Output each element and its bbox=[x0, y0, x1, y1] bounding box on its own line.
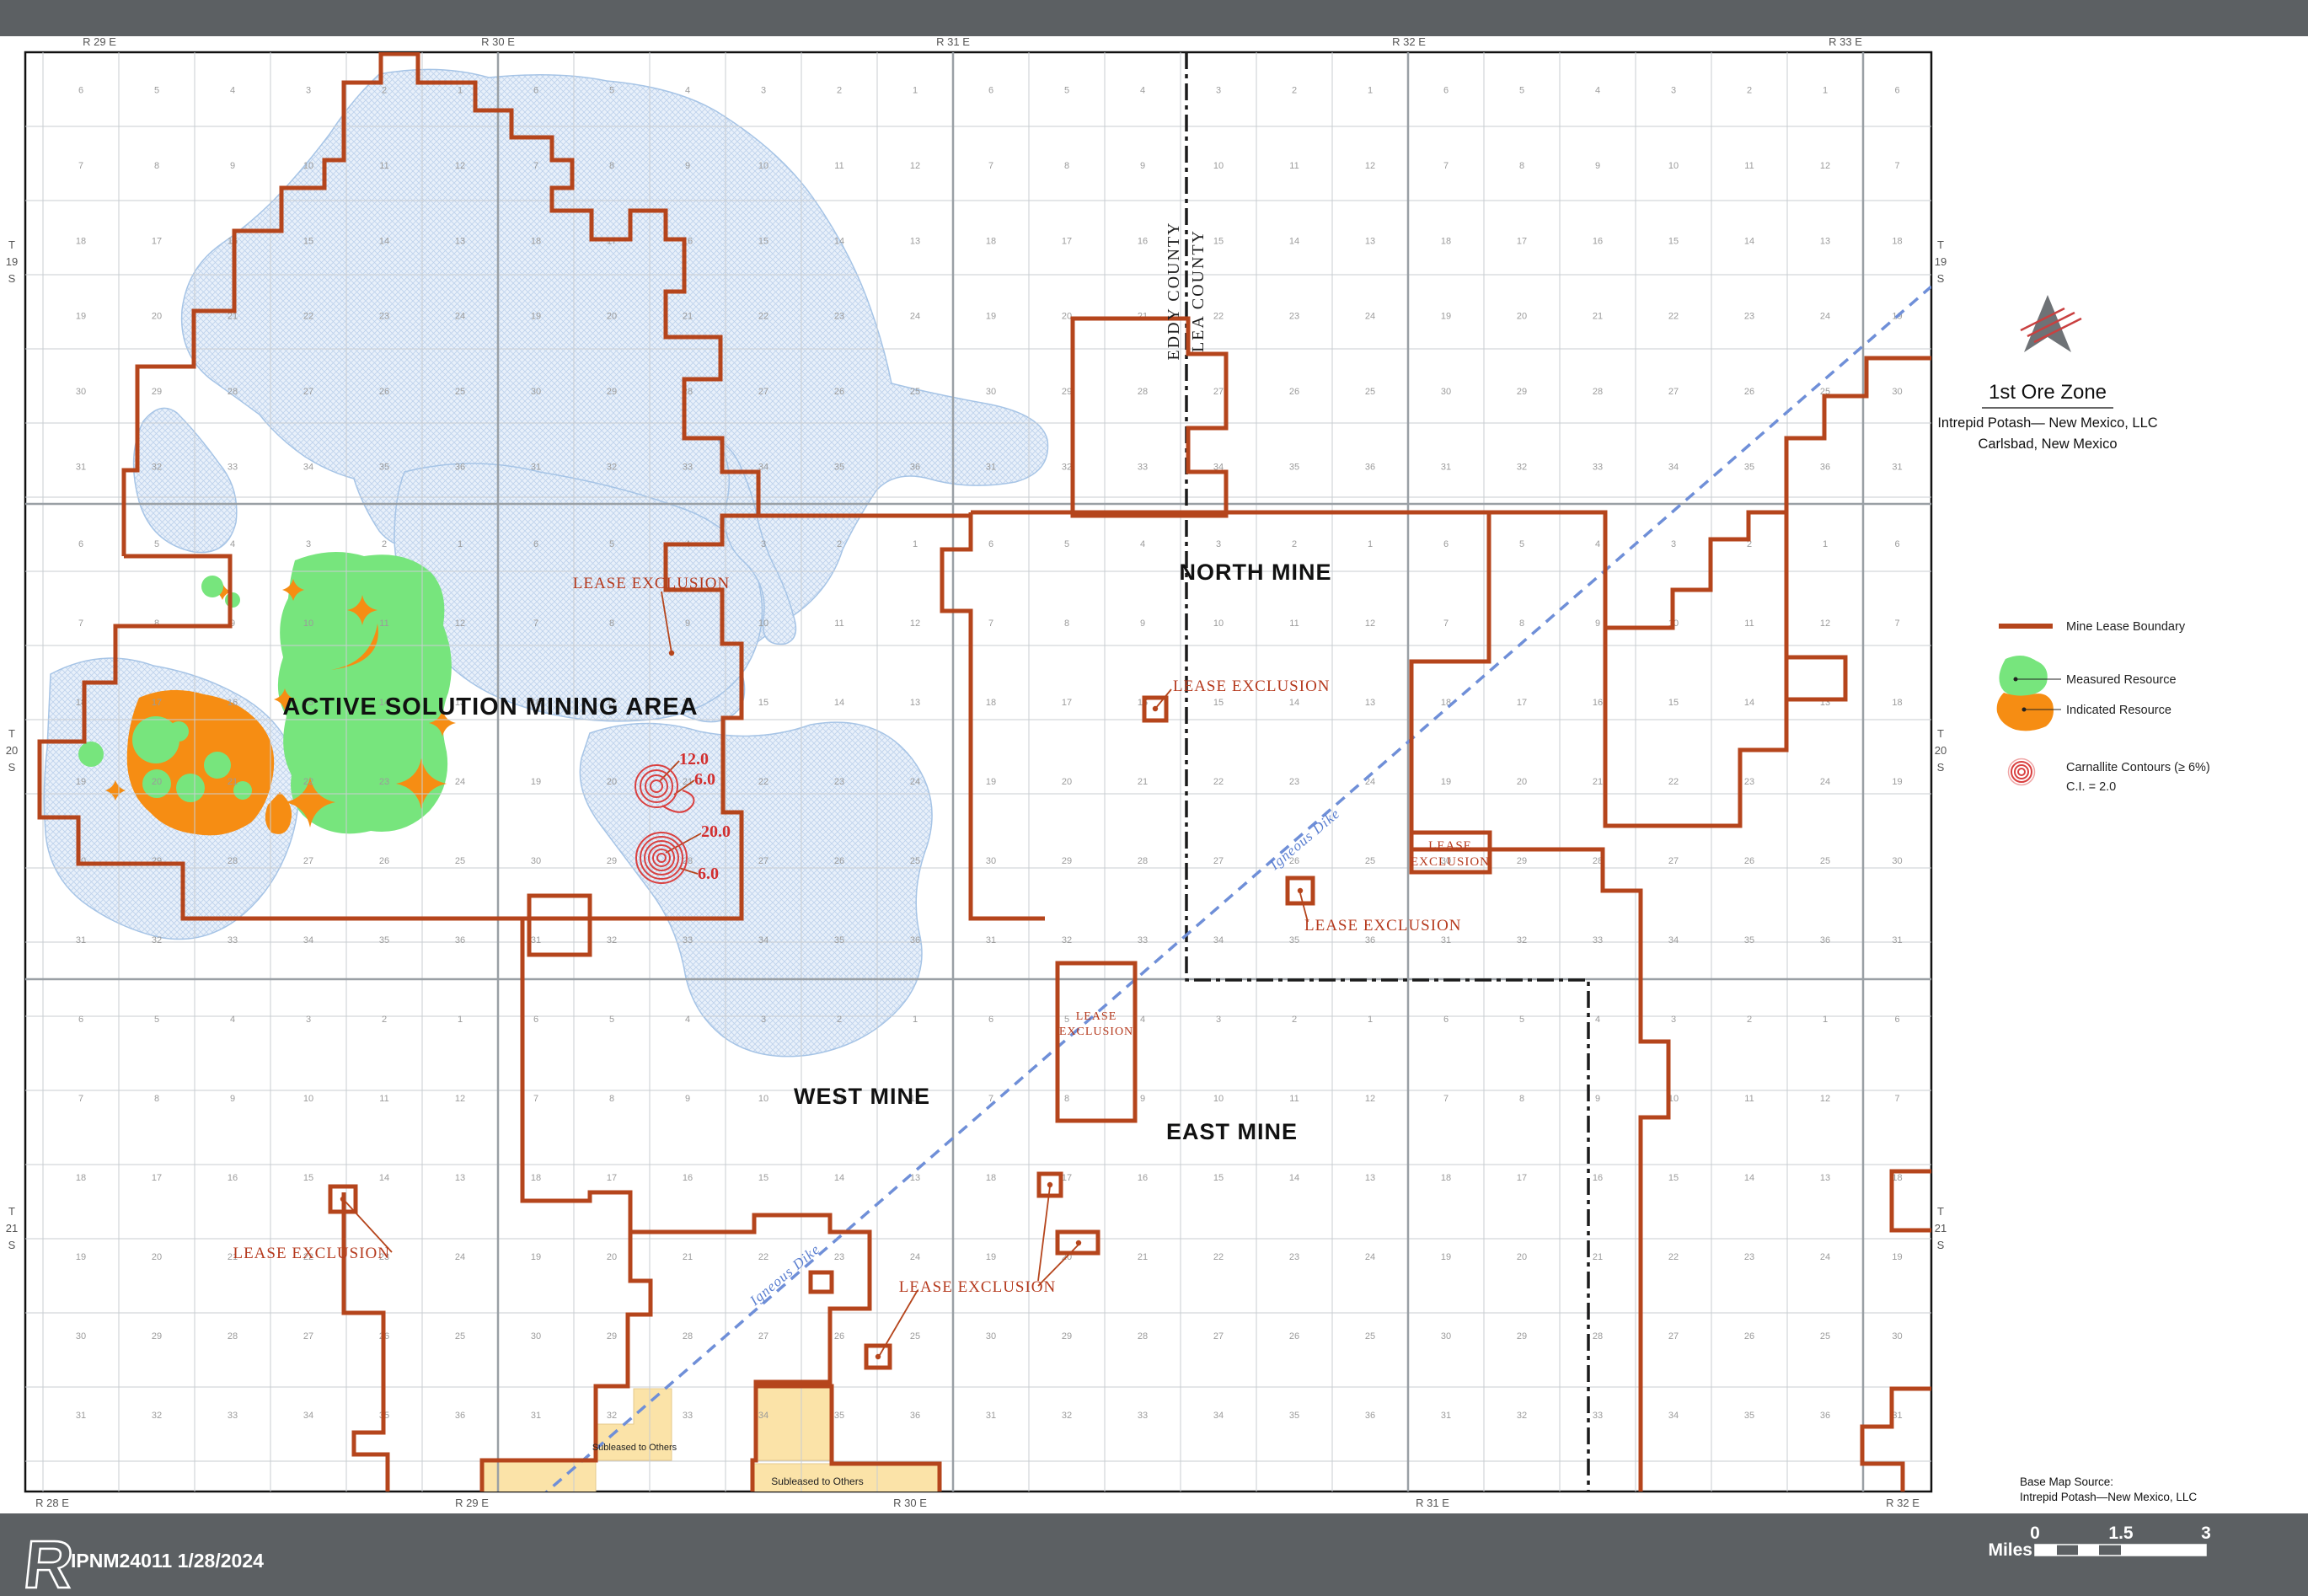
west-mine-label: WEST MINE bbox=[794, 1084, 930, 1109]
section-number: 1 bbox=[913, 86, 918, 96]
section-number: 16 bbox=[1593, 236, 1603, 246]
logo-letter: R bbox=[20, 1526, 77, 1596]
section-number: 32 bbox=[1062, 1411, 1072, 1421]
section-number: 33 bbox=[228, 935, 238, 945]
township-label: T bbox=[8, 1205, 15, 1218]
section-number: 12 bbox=[455, 1094, 465, 1104]
section-number: 20 bbox=[1517, 312, 1527, 322]
section-number: 24 bbox=[910, 777, 920, 787]
section-number: 4 bbox=[685, 86, 690, 96]
section-number: 27 bbox=[303, 856, 313, 866]
section-number: 18 bbox=[1892, 236, 1902, 246]
section-number: 25 bbox=[910, 856, 920, 866]
section-number: 33 bbox=[683, 462, 693, 472]
section-number: 23 bbox=[379, 312, 389, 322]
section-number: 5 bbox=[1519, 539, 1524, 549]
section-number: 19 bbox=[1892, 1252, 1902, 1262]
section-number: 19 bbox=[1441, 777, 1451, 787]
section-number: 18 bbox=[531, 236, 541, 246]
section-number: 24 bbox=[1820, 312, 1830, 322]
section-number: 20 bbox=[607, 312, 617, 322]
section-number: 32 bbox=[1062, 935, 1072, 945]
section-number: 34 bbox=[303, 1411, 313, 1421]
north-mine-label: NORTH MINE bbox=[1180, 560, 1332, 585]
section-number: 32 bbox=[607, 462, 617, 472]
township-label: S bbox=[1937, 1239, 1945, 1251]
section-number: 29 bbox=[1062, 1331, 1072, 1342]
section-number: 34 bbox=[1213, 935, 1224, 945]
section-number: 13 bbox=[455, 1173, 465, 1183]
section-number: 24 bbox=[1820, 777, 1830, 787]
section-number: 19 bbox=[76, 312, 86, 322]
section-number: 11 bbox=[1744, 619, 1754, 629]
section-number: 11 bbox=[379, 1094, 388, 1104]
section-number: 16 bbox=[683, 1173, 693, 1183]
section-number: 6 bbox=[1894, 86, 1899, 96]
section-number: 27 bbox=[303, 387, 313, 397]
section-number: 19 bbox=[76, 777, 86, 787]
section-number: 24 bbox=[1365, 1252, 1375, 1262]
section-number: 6 bbox=[533, 539, 538, 549]
range-label-top: R 32 E bbox=[1392, 35, 1426, 48]
map-document: 6543217891011121817161514131920212223243… bbox=[0, 0, 2308, 1596]
scale-tick-0: 0 bbox=[2030, 1524, 2040, 1543]
section-number: 13 bbox=[910, 1173, 920, 1183]
section-number: 21 bbox=[1138, 777, 1148, 787]
section-number: 5 bbox=[1519, 1015, 1524, 1025]
township-label: T bbox=[8, 727, 15, 740]
scale-bar-segment bbox=[2099, 1545, 2121, 1556]
section-number: 26 bbox=[1289, 387, 1299, 397]
section-number: 10 bbox=[303, 161, 313, 171]
section-number: 22 bbox=[303, 777, 313, 787]
range-label-bottom: R 28 E bbox=[35, 1497, 69, 1509]
section-number: 6 bbox=[1443, 86, 1449, 96]
township-label: T bbox=[1937, 727, 1944, 740]
section-number: 33 bbox=[1593, 462, 1603, 472]
section-number: 29 bbox=[607, 856, 617, 866]
section-number: 18 bbox=[531, 1173, 541, 1183]
section-number: 35 bbox=[1289, 462, 1299, 472]
section-number: 6 bbox=[78, 1015, 83, 1025]
section-number: 29 bbox=[607, 387, 617, 397]
section-number: 2 bbox=[382, 539, 387, 549]
section-number: 9 bbox=[1140, 1094, 1145, 1104]
section-number: 29 bbox=[1517, 1331, 1527, 1342]
measured-circle bbox=[201, 576, 223, 597]
section-number: 31 bbox=[1892, 935, 1902, 945]
section-number: 36 bbox=[1365, 1411, 1375, 1421]
section-number: 6 bbox=[78, 86, 83, 96]
section-number: 5 bbox=[1519, 86, 1524, 96]
section-number: 30 bbox=[76, 387, 86, 397]
section-number: 29 bbox=[1517, 856, 1527, 866]
section-number: 22 bbox=[1668, 1252, 1679, 1262]
section-number: 29 bbox=[1062, 856, 1072, 866]
section-number: 27 bbox=[758, 856, 768, 866]
section-number: 19 bbox=[1441, 1252, 1451, 1262]
section-number: 10 bbox=[303, 1094, 313, 1104]
section-number: 18 bbox=[1441, 1173, 1451, 1183]
section-number: 29 bbox=[152, 1331, 162, 1342]
section-number: 23 bbox=[1744, 777, 1754, 787]
section-number: 8 bbox=[609, 161, 614, 171]
section-number: 17 bbox=[1517, 236, 1527, 246]
section-number: 26 bbox=[834, 387, 844, 397]
section-number: 30 bbox=[986, 1331, 996, 1342]
section-number: 31 bbox=[76, 935, 86, 945]
section-number: 22 bbox=[303, 312, 313, 322]
section-number: 13 bbox=[910, 236, 920, 246]
section-number: 25 bbox=[1820, 1331, 1830, 1342]
lease-exclusion-label: LEASE EXCLUSION bbox=[1304, 917, 1462, 935]
document-number: IPNM24011 1/28/2024 bbox=[71, 1550, 264, 1572]
township-label: 20 bbox=[1935, 744, 1947, 757]
section-number: 35 bbox=[834, 1411, 844, 1421]
section-number: 10 bbox=[303, 619, 313, 629]
section-number: 11 bbox=[379, 619, 388, 629]
section-number: 18 bbox=[1892, 698, 1902, 708]
section-number: 4 bbox=[1140, 1015, 1145, 1025]
township-label: 21 bbox=[1935, 1222, 1947, 1234]
section-number: 5 bbox=[154, 86, 159, 96]
section-number: 35 bbox=[1744, 1411, 1754, 1421]
section-number: 22 bbox=[1213, 312, 1224, 322]
section-number: 36 bbox=[1365, 462, 1375, 472]
section-number: 17 bbox=[152, 236, 162, 246]
measured-circle bbox=[204, 752, 231, 779]
section-number: 35 bbox=[379, 462, 389, 472]
section-number: 30 bbox=[531, 387, 541, 397]
contour-value-label: 12.0 bbox=[679, 750, 709, 769]
section-number: 4 bbox=[1140, 86, 1145, 96]
section-number: 34 bbox=[1668, 1411, 1679, 1421]
section-number: 10 bbox=[1668, 161, 1679, 171]
section-number: 2 bbox=[1747, 1015, 1752, 1025]
section-number: 15 bbox=[303, 236, 313, 246]
section-number: 5 bbox=[609, 1015, 614, 1025]
section-number: 1 bbox=[1823, 539, 1828, 549]
section-number: 31 bbox=[76, 1411, 86, 1421]
section-number: 8 bbox=[154, 1094, 159, 1104]
section-number: 14 bbox=[379, 236, 389, 246]
section-number: 27 bbox=[1213, 856, 1224, 866]
section-number: 22 bbox=[758, 777, 768, 787]
footer-background bbox=[0, 1513, 2308, 1596]
section-number: 5 bbox=[154, 1015, 159, 1025]
section-number: 5 bbox=[1064, 86, 1069, 96]
section-number: 1 bbox=[913, 1015, 918, 1025]
section-number: 31 bbox=[76, 462, 86, 472]
section-number: 26 bbox=[379, 856, 389, 866]
top-bar bbox=[0, 0, 2308, 36]
scale-tick-1: 1.5 bbox=[2108, 1524, 2134, 1543]
section-number: 7 bbox=[533, 1094, 538, 1104]
section-number: 31 bbox=[1441, 935, 1451, 945]
section-number: 26 bbox=[1744, 856, 1754, 866]
section-number: 27 bbox=[1668, 856, 1679, 866]
section-number: 3 bbox=[1216, 86, 1221, 96]
section-number: 12 bbox=[455, 619, 465, 629]
section-number: 33 bbox=[1138, 462, 1148, 472]
section-number: 22 bbox=[758, 312, 768, 322]
section-number: 15 bbox=[1213, 236, 1224, 246]
section-number: 10 bbox=[758, 1094, 768, 1104]
range-label-top: R 30 E bbox=[481, 35, 515, 48]
section-number: 27 bbox=[1213, 387, 1224, 397]
section-number: 6 bbox=[988, 86, 993, 96]
section-number: 1 bbox=[458, 86, 463, 96]
section-number: 17 bbox=[1062, 236, 1072, 246]
township-label: S bbox=[8, 1239, 16, 1251]
measured-circle bbox=[132, 716, 179, 763]
section-number: 19 bbox=[531, 1252, 541, 1262]
section-number: 23 bbox=[1744, 312, 1754, 322]
township-label: 19 bbox=[6, 255, 18, 268]
section-number: 6 bbox=[1443, 1015, 1449, 1025]
section-number: 8 bbox=[1064, 161, 1069, 171]
section-number: 25 bbox=[910, 1331, 920, 1342]
section-number: 18 bbox=[986, 698, 996, 708]
section-number: 9 bbox=[1140, 161, 1145, 171]
section-number: 9 bbox=[685, 1094, 690, 1104]
section-number: 2 bbox=[1292, 1015, 1297, 1025]
section-number: 15 bbox=[303, 1173, 313, 1183]
section-number: 16 bbox=[1593, 1173, 1603, 1183]
section-number: 4 bbox=[685, 1015, 690, 1025]
section-number: 23 bbox=[834, 312, 844, 322]
section-number: 20 bbox=[1062, 777, 1072, 787]
section-number: 29 bbox=[152, 387, 162, 397]
section-number: 20 bbox=[152, 312, 162, 322]
section-number: 28 bbox=[228, 1331, 238, 1342]
section-number: 13 bbox=[1365, 698, 1375, 708]
map-title: 1st Ore Zone bbox=[1989, 381, 2107, 404]
section-number: 28 bbox=[228, 856, 238, 866]
section-number: 23 bbox=[1744, 1252, 1754, 1262]
section-number: 19 bbox=[1892, 777, 1902, 787]
footer-bar: R IPNM24011 1/28/2024 Miles 0 1.5 3 bbox=[0, 1513, 2308, 1596]
section-number: 20 bbox=[1062, 312, 1072, 322]
section-number: 22 bbox=[1213, 1252, 1224, 1262]
section-number: 8 bbox=[1519, 1094, 1524, 1104]
section-number: 26 bbox=[834, 856, 844, 866]
section-number: 14 bbox=[834, 698, 844, 708]
section-number: 31 bbox=[986, 935, 996, 945]
subleased-area bbox=[756, 1386, 832, 1460]
section-number: 19 bbox=[531, 777, 541, 787]
section-number: 17 bbox=[607, 1173, 617, 1183]
section-number: 13 bbox=[1820, 1173, 1830, 1183]
section-number: 32 bbox=[1062, 462, 1072, 472]
section-number: 34 bbox=[1213, 1411, 1224, 1421]
section-number: 28 bbox=[1593, 1331, 1603, 1342]
section-number: 11 bbox=[1289, 1094, 1299, 1104]
section-number: 11 bbox=[379, 161, 388, 171]
section-number: 8 bbox=[1064, 619, 1069, 629]
section-number: 1 bbox=[458, 1015, 463, 1025]
range-label-bottom: R 29 E bbox=[455, 1497, 489, 1509]
section-number: 28 bbox=[683, 1331, 693, 1342]
section-number: 31 bbox=[986, 1411, 996, 1421]
section-number: 4 bbox=[1595, 539, 1600, 549]
legend-indicated-label: Indicated Resource bbox=[2066, 704, 2171, 717]
section-number: 3 bbox=[761, 1015, 766, 1025]
measured-circle bbox=[225, 592, 240, 608]
section-number: 14 bbox=[1289, 698, 1299, 708]
section-number: 11 bbox=[1744, 161, 1754, 171]
section-number: 10 bbox=[1213, 161, 1224, 171]
section-number: 9 bbox=[1595, 619, 1600, 629]
section-number: 24 bbox=[455, 1252, 465, 1262]
title-block: 1st Ore Zone Intrepid Potash— New Mexico… bbox=[1937, 295, 2157, 452]
section-number: 24 bbox=[455, 312, 465, 322]
section-number: 7 bbox=[1894, 161, 1899, 171]
section-number: 16 bbox=[1138, 1173, 1148, 1183]
section-number: 29 bbox=[1517, 387, 1527, 397]
lease-exclusion-label: LEASE EXCLUSION bbox=[573, 575, 731, 592]
section-number: 12 bbox=[1820, 619, 1830, 629]
section-number: 34 bbox=[1668, 462, 1679, 472]
section-number: 29 bbox=[607, 1331, 617, 1342]
range-label-top: R 33 E bbox=[1829, 35, 1862, 48]
section-number: 22 bbox=[1668, 777, 1679, 787]
section-number: 22 bbox=[758, 1252, 768, 1262]
legend-carnallite-icon bbox=[2009, 759, 2035, 785]
section-number: 16 bbox=[228, 1173, 238, 1183]
section-number: 17 bbox=[1062, 698, 1072, 708]
section-number: 14 bbox=[379, 1173, 389, 1183]
section-number: 27 bbox=[758, 387, 768, 397]
section-number: 20 bbox=[152, 777, 162, 787]
section-number: 14 bbox=[1289, 1173, 1299, 1183]
section-number: 24 bbox=[455, 777, 465, 787]
measured-circle bbox=[176, 774, 205, 802]
section-number: 3 bbox=[306, 1015, 311, 1025]
township-label: S bbox=[8, 761, 16, 774]
section-number: 7 bbox=[1894, 1094, 1899, 1104]
section-number: 30 bbox=[1892, 856, 1902, 866]
section-number: 36 bbox=[1820, 935, 1830, 945]
legend-measured-icon bbox=[1999, 656, 2047, 697]
section-number: 28 bbox=[1138, 856, 1148, 866]
section-number: 6 bbox=[988, 1015, 993, 1025]
section-number: 3 bbox=[1671, 86, 1676, 96]
section-number: 36 bbox=[1820, 462, 1830, 472]
section-number: 31 bbox=[1892, 462, 1902, 472]
section-number: 22 bbox=[1668, 312, 1679, 322]
section-number: 20 bbox=[1517, 1252, 1527, 1262]
section-number: 34 bbox=[758, 1411, 768, 1421]
section-number: 8 bbox=[1519, 161, 1524, 171]
section-number: 6 bbox=[1894, 539, 1899, 549]
legend-carnallite-ci: C.I. = 2.0 bbox=[2066, 780, 2116, 794]
section-number: 26 bbox=[1744, 387, 1754, 397]
section-number: 2 bbox=[1292, 539, 1297, 549]
section-number: 11 bbox=[834, 619, 843, 629]
section-number: 33 bbox=[1138, 1411, 1148, 1421]
section-number: 28 bbox=[1138, 1331, 1148, 1342]
section-number: 18 bbox=[986, 236, 996, 246]
section-number: 2 bbox=[837, 86, 842, 96]
section-number: 12 bbox=[1820, 1094, 1830, 1104]
section-number: 20 bbox=[152, 1252, 162, 1262]
section-number: 17 bbox=[1517, 1173, 1527, 1183]
section-number: 26 bbox=[1744, 1331, 1754, 1342]
section-number: 31 bbox=[1441, 462, 1451, 472]
section-number: 30 bbox=[1441, 1331, 1451, 1342]
section-number: 32 bbox=[607, 935, 617, 945]
section-number: 28 bbox=[1138, 387, 1148, 397]
section-number: 10 bbox=[1213, 1094, 1224, 1104]
section-number: 35 bbox=[1289, 1411, 1299, 1421]
lease-exclusion-label: LEASE EXCLUSION bbox=[899, 1278, 1057, 1296]
section-number: 36 bbox=[1820, 1411, 1830, 1421]
measured-circle bbox=[169, 721, 189, 742]
section-number: 33 bbox=[683, 935, 693, 945]
contour-value-label: 6.0 bbox=[694, 770, 715, 789]
section-number: 35 bbox=[834, 935, 844, 945]
section-number: 30 bbox=[1892, 1331, 1902, 1342]
section-number: 9 bbox=[685, 161, 690, 171]
section-number: 10 bbox=[758, 161, 768, 171]
section-number: 15 bbox=[1668, 698, 1679, 708]
section-number: 8 bbox=[154, 161, 159, 171]
section-number: 9 bbox=[230, 1094, 235, 1104]
section-number: 36 bbox=[910, 462, 920, 472]
section-number: 25 bbox=[1820, 856, 1830, 866]
section-number: 32 bbox=[152, 1411, 162, 1421]
section-number: 33 bbox=[1138, 935, 1148, 945]
section-number: 2 bbox=[1747, 86, 1752, 96]
east-mine-label: EAST MINE bbox=[1166, 1119, 1298, 1144]
section-number: 13 bbox=[910, 698, 920, 708]
map-canvas: 6543217891011121817161514131920212223243… bbox=[0, 0, 2308, 1596]
section-number: 1 bbox=[1368, 539, 1373, 549]
range-label-bottom: R 32 E bbox=[1886, 1497, 1920, 1509]
section-number: 35 bbox=[834, 462, 844, 472]
township-label: S bbox=[1937, 761, 1945, 774]
section-number: 31 bbox=[531, 935, 541, 945]
section-number: 35 bbox=[1744, 935, 1754, 945]
section-number: 24 bbox=[910, 1252, 920, 1262]
section-number: 34 bbox=[303, 462, 313, 472]
section-number: 18 bbox=[986, 1173, 996, 1183]
legend-measured-label: Measured Resource bbox=[2066, 673, 2177, 687]
section-number: 36 bbox=[455, 462, 465, 472]
lease-exclusion-boxed-label: EXCLUSION bbox=[1411, 855, 1490, 869]
township-label: S bbox=[8, 272, 16, 285]
section-number: 28 bbox=[1593, 387, 1603, 397]
section-number: 11 bbox=[1744, 1094, 1754, 1104]
section-number: 2 bbox=[837, 539, 842, 549]
section-number: 7 bbox=[1443, 619, 1449, 629]
section-number: 7 bbox=[533, 619, 538, 629]
contour-value-label: 20.0 bbox=[701, 822, 731, 841]
source-note-line2: Intrepid Potash—New Mexico, LLC bbox=[2020, 1491, 2197, 1503]
section-number: 30 bbox=[1892, 387, 1902, 397]
range-label-top: R 31 E bbox=[936, 35, 970, 48]
range-label-top: R 29 E bbox=[83, 35, 116, 48]
section-number: 26 bbox=[379, 387, 389, 397]
section-number: 8 bbox=[609, 1094, 614, 1104]
section-number: 18 bbox=[76, 1173, 86, 1183]
section-number: 21 bbox=[1593, 777, 1603, 787]
section-number: 12 bbox=[910, 161, 920, 171]
section-number: 5 bbox=[1064, 539, 1069, 549]
section-number: 5 bbox=[1064, 1015, 1069, 1025]
section-number: 30 bbox=[531, 856, 541, 866]
